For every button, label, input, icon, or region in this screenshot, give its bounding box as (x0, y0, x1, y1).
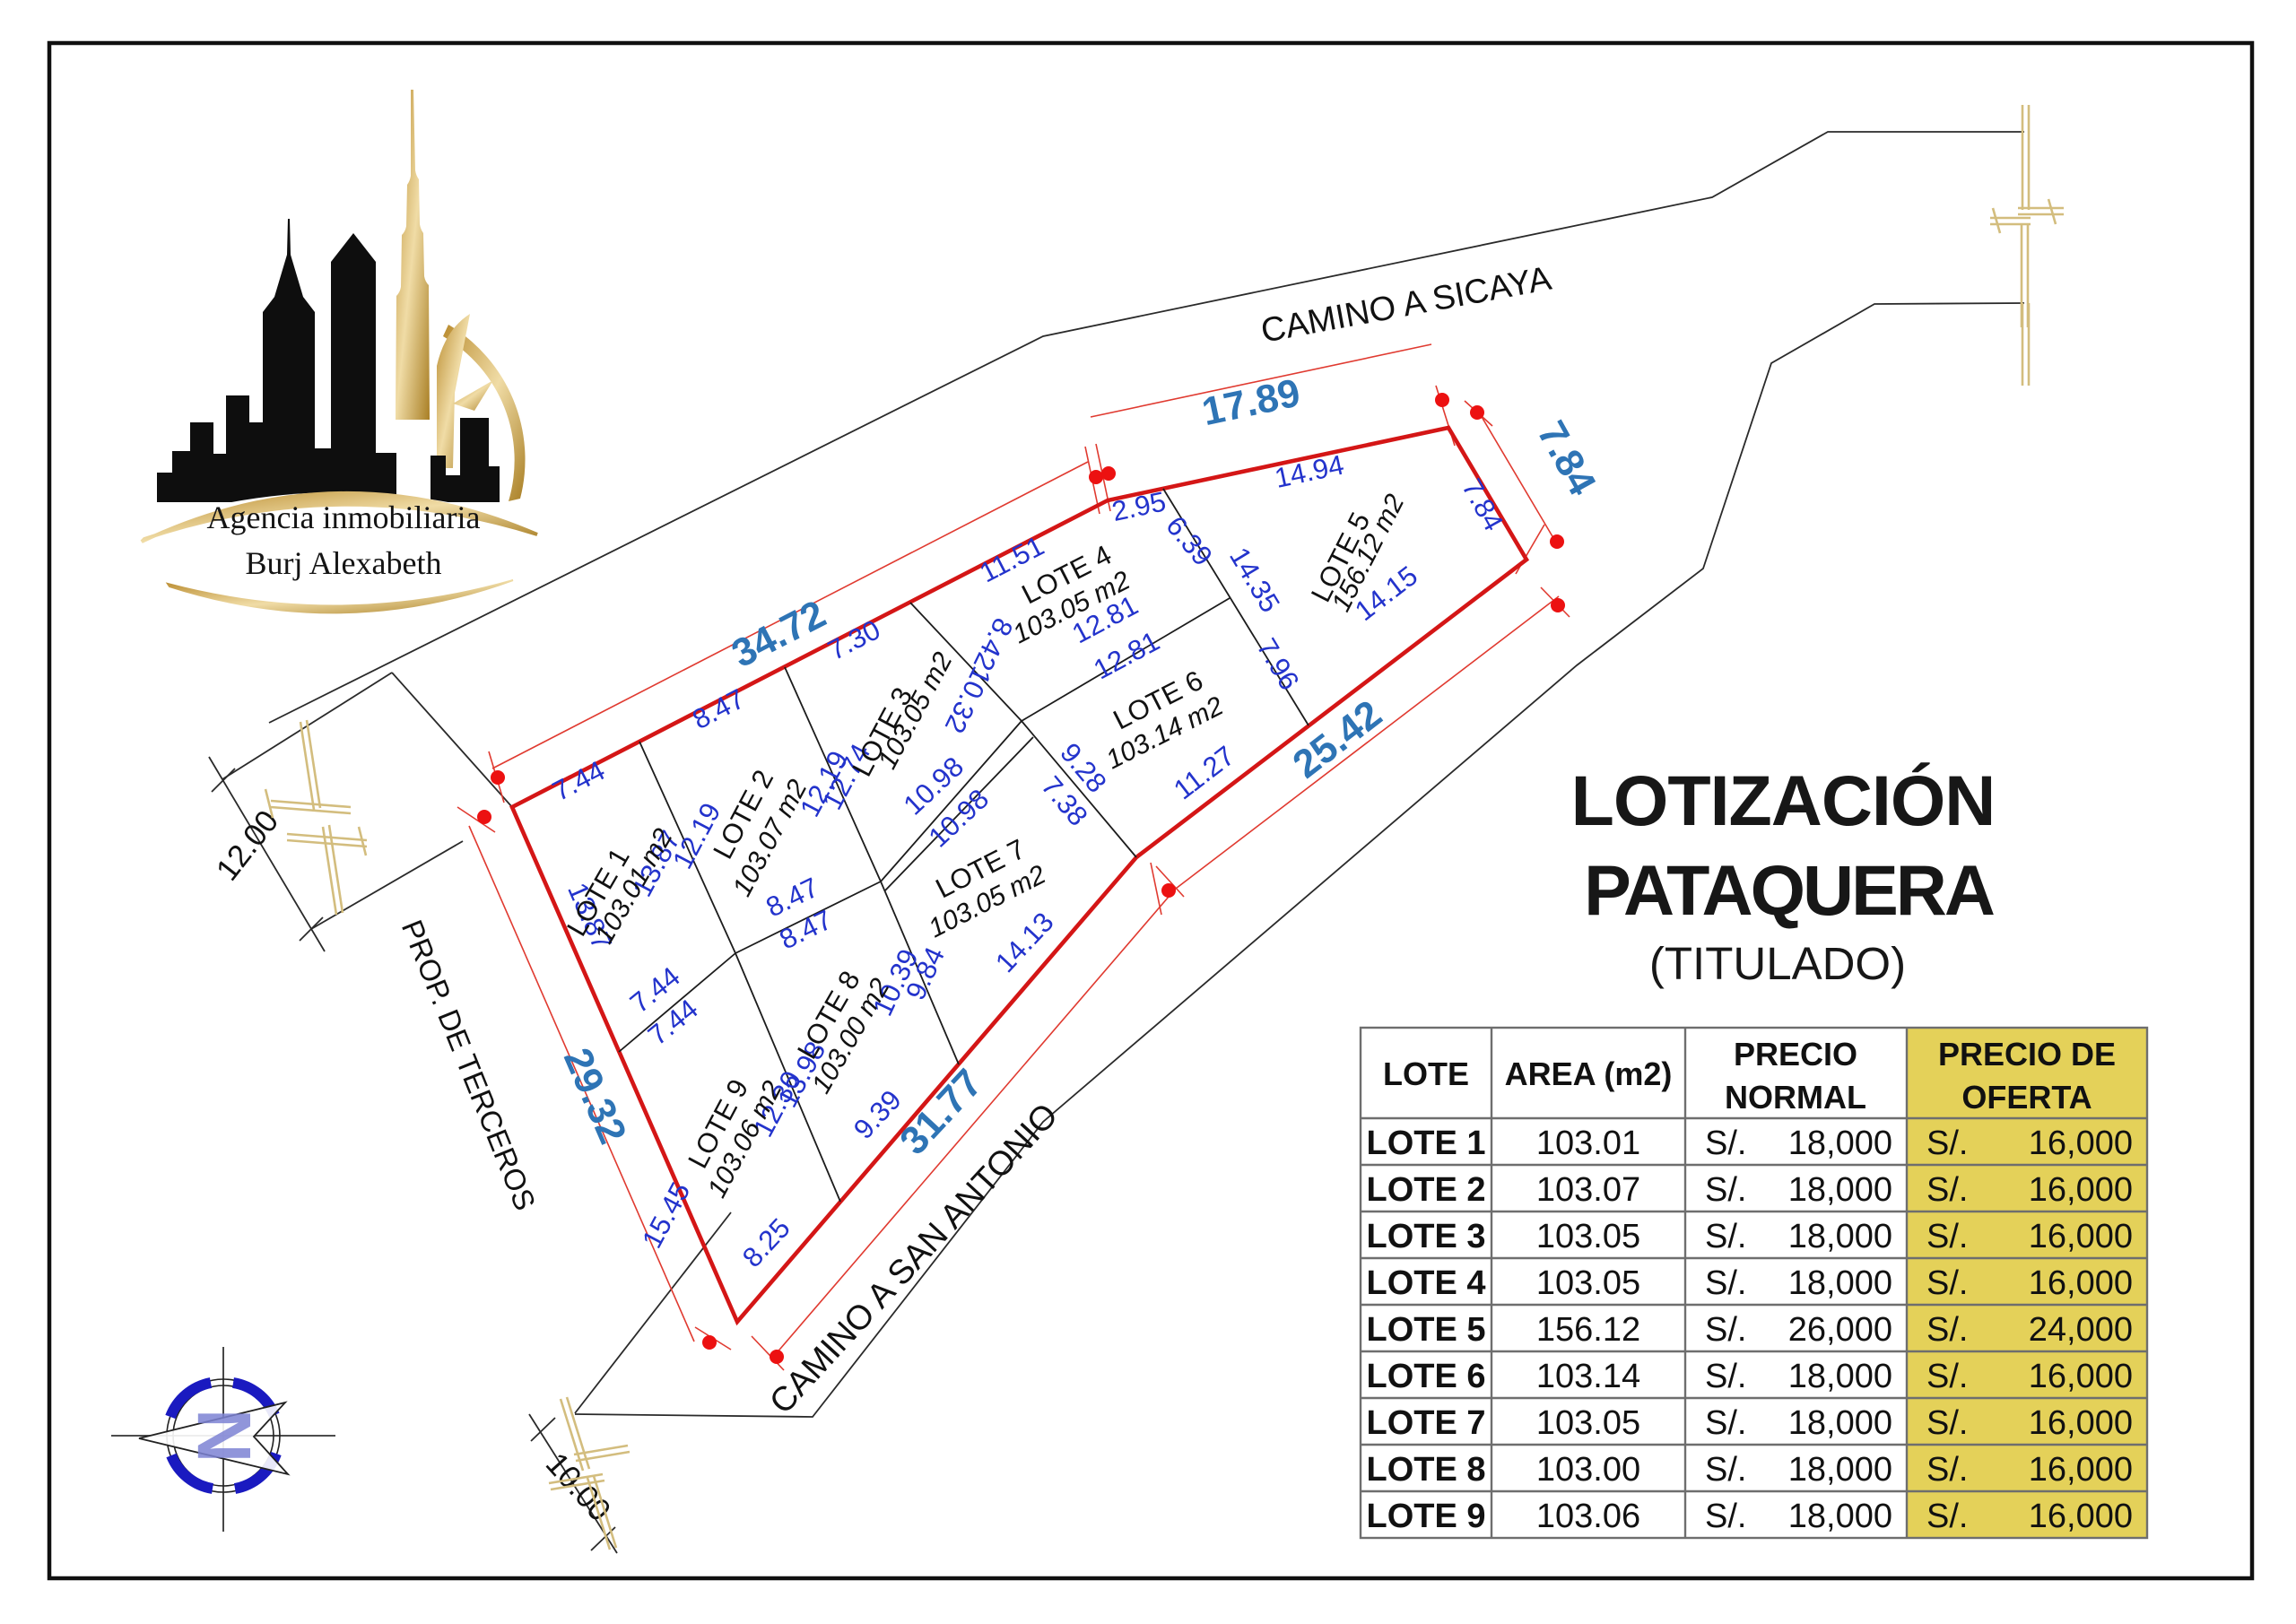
svg-text:LOTE 9: LOTE 9 (1366, 1498, 1485, 1535)
svg-text:16,000: 16,000 (2029, 1404, 2133, 1442)
svg-text:LOTE: LOTE (1383, 1055, 1469, 1092)
svg-text:LOTE 1: LOTE 1 (1366, 1125, 1485, 1162)
svg-text:LOTE 7: LOTE 7 (1366, 1404, 1485, 1442)
svg-text:S/.: S/. (1926, 1218, 1968, 1255)
svg-text:103.00: 103.00 (1536, 1451, 1640, 1489)
svg-text:S/.: S/. (1705, 1171, 1746, 1209)
svg-text:18,000: 18,000 (1788, 1404, 1892, 1442)
svg-text:18,000: 18,000 (1788, 1125, 1892, 1162)
svg-text:18,000: 18,000 (1788, 1218, 1892, 1255)
svg-text:S/.: S/. (1926, 1404, 1968, 1442)
svg-text:18,000: 18,000 (1788, 1264, 1892, 1302)
svg-text:OFERTA: OFERTA (1961, 1079, 2092, 1116)
svg-text:LOTE 5: LOTE 5 (1366, 1311, 1485, 1349)
svg-text:26,000: 26,000 (1788, 1311, 1892, 1349)
svg-text:Burj Alexabeth: Burj Alexabeth (246, 545, 442, 581)
svg-text:S/.: S/. (1705, 1451, 1746, 1489)
svg-text:103.07: 103.07 (1536, 1171, 1640, 1209)
svg-text:LOTE 2: LOTE 2 (1366, 1171, 1485, 1209)
svg-text:S/.: S/. (1705, 1125, 1746, 1162)
svg-text:18,000: 18,000 (1788, 1451, 1892, 1489)
svg-text:103.05: 103.05 (1536, 1218, 1640, 1255)
svg-text:103.05: 103.05 (1536, 1264, 1640, 1302)
svg-text:LOTE 6: LOTE 6 (1366, 1358, 1485, 1395)
svg-text:18,000: 18,000 (1788, 1498, 1892, 1535)
svg-text:18,000: 18,000 (1788, 1358, 1892, 1395)
svg-text:LOTE 4: LOTE 4 (1366, 1264, 1485, 1302)
svg-text:S/.: S/. (1705, 1311, 1746, 1349)
svg-text:16,000: 16,000 (2029, 1451, 2133, 1489)
svg-text:16,000: 16,000 (2029, 1218, 2133, 1255)
svg-text:16,000: 16,000 (2029, 1171, 2133, 1209)
svg-text:Agencia inmobiliaria: Agencia inmobiliaria (207, 499, 481, 535)
svg-text:103.05: 103.05 (1536, 1404, 1640, 1442)
svg-text:16,000: 16,000 (2029, 1264, 2133, 1302)
svg-text:S/.: S/. (1705, 1264, 1746, 1302)
svg-text:AREA (m2): AREA (m2) (1505, 1055, 1673, 1092)
svg-text:16,000: 16,000 (2029, 1498, 2133, 1535)
svg-text:LOTIZACIÓN: LOTIZACIÓN (1571, 760, 1996, 840)
svg-text:LOTE 3: LOTE 3 (1366, 1218, 1485, 1255)
svg-text:S/.: S/. (1926, 1358, 1968, 1395)
svg-text:18,000: 18,000 (1788, 1171, 1892, 1209)
svg-text:(TITULADO): (TITULADO) (1649, 938, 1906, 989)
svg-text:S/.: S/. (1926, 1311, 1968, 1349)
svg-text:103.01: 103.01 (1536, 1125, 1640, 1162)
svg-text:LOTE 8: LOTE 8 (1366, 1451, 1485, 1489)
svg-text:103.06: 103.06 (1536, 1498, 1640, 1535)
svg-text:S/.: S/. (1926, 1264, 1968, 1302)
svg-text:24,000: 24,000 (2029, 1311, 2133, 1349)
svg-text:S/.: S/. (1705, 1358, 1746, 1395)
svg-text:S/.: S/. (1926, 1498, 1968, 1535)
svg-text:S/.: S/. (1926, 1171, 1968, 1209)
svg-text:S/.: S/. (1926, 1125, 1968, 1162)
svg-text:16,000: 16,000 (2029, 1358, 2133, 1395)
svg-text:156.12: 156.12 (1536, 1311, 1640, 1349)
svg-text:PATAQUERA: PATAQUERA (1584, 850, 1994, 930)
svg-text:PRECIO DE: PRECIO DE (1938, 1036, 2116, 1073)
svg-text:16,000: 16,000 (2029, 1125, 2133, 1162)
svg-text:103.14: 103.14 (1536, 1358, 1640, 1395)
svg-text:PRECIO: PRECIO (1734, 1036, 1857, 1073)
svg-text:S/.: S/. (1705, 1218, 1746, 1255)
svg-text:N: N (182, 1409, 266, 1463)
svg-text:NORMAL: NORMAL (1725, 1079, 1866, 1116)
svg-text:S/.: S/. (1705, 1498, 1746, 1535)
svg-text:S/.: S/. (1705, 1404, 1746, 1442)
svg-text:S/.: S/. (1926, 1451, 1968, 1489)
